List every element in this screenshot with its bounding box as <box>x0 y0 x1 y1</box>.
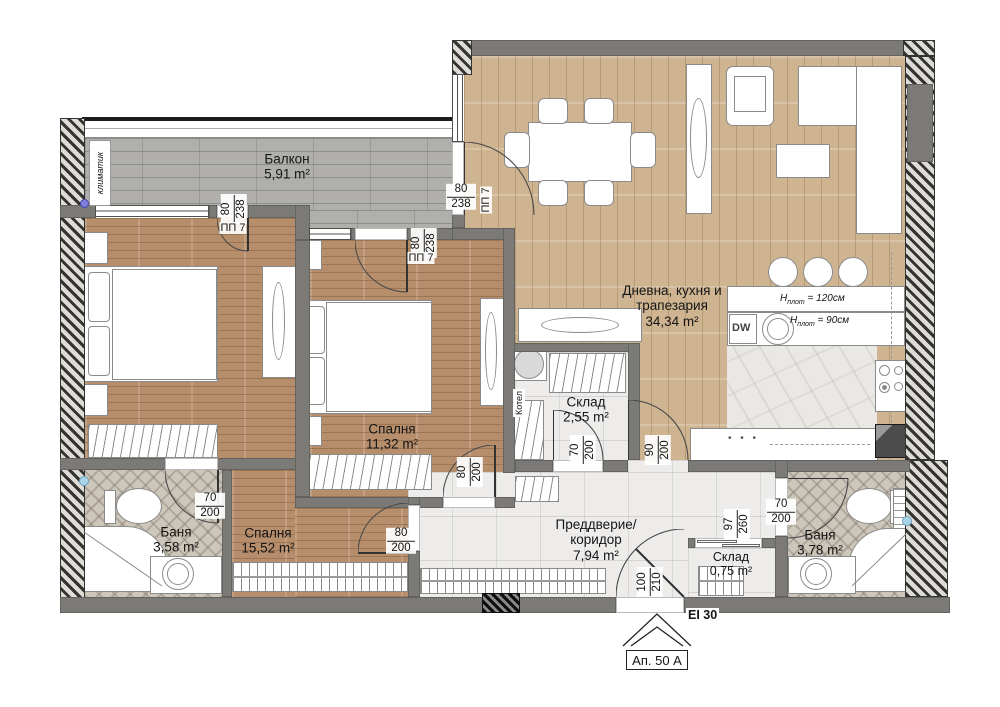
door-dim: 90200 <box>645 435 671 465</box>
dishwasher-label: DW <box>732 322 750 334</box>
room-label-living: Дневна, кухня и трапезария34,34 m² <box>602 283 742 329</box>
boiler-label: Котел <box>513 389 525 417</box>
room-label-corridor: Преддверие/ коридор7,94 m² <box>541 517 651 563</box>
fire-door-tag: ПП 7 <box>408 252 435 264</box>
door-dim: 70200 <box>766 499 796 525</box>
ac-dot <box>80 199 89 208</box>
door-dim: 100210 <box>637 567 663 597</box>
room-label-balcony: Балкон5,91 m² <box>264 152 310 183</box>
apartment-number: Ап. 50 A <box>626 650 688 670</box>
door-dim: 80238 <box>221 194 247 224</box>
room-label-bath-left: Баня3,58 m² <box>153 525 199 556</box>
door-dim: 70200 <box>195 493 225 519</box>
room-label-bath-right: Баня3,78 m² <box>797 528 843 559</box>
cabinet-handles: • • • <box>728 433 759 444</box>
floor-plan: Балкон5,91 m² Дневна, кухня и трапезария… <box>0 0 1000 707</box>
door-dim: 80238 <box>446 184 476 210</box>
ac-unit-label: климатик <box>95 152 105 194</box>
fire-door-tag: ПП 7 <box>480 187 492 214</box>
counter-height-work: Hплот = 90см <box>790 315 849 328</box>
shower-diagonal <box>0 0 1000 707</box>
vent-dot <box>79 476 89 486</box>
fire-door-tag: ПП 7 <box>220 222 247 234</box>
room-label-storage-small: Склад0,75 m² <box>710 550 752 579</box>
door-dim: 80200 <box>457 457 483 487</box>
door-dim: 70200 <box>570 435 596 465</box>
room-label-storage-large: Склад2,55 m² <box>563 395 609 426</box>
door-dim: 80200 <box>386 528 416 554</box>
counter-height-bar: Hплот = 120см <box>780 293 845 306</box>
fire-rating-label: EI 30 <box>686 608 719 622</box>
door-dim: 97260 <box>724 509 750 539</box>
entrance-arrow <box>615 608 697 650</box>
vent-dot <box>902 516 912 526</box>
room-label-bedroom-mid: Спалня11,32 m² <box>366 422 418 453</box>
room-label-bedroom-left: Спалня15,52 m² <box>241 526 294 557</box>
